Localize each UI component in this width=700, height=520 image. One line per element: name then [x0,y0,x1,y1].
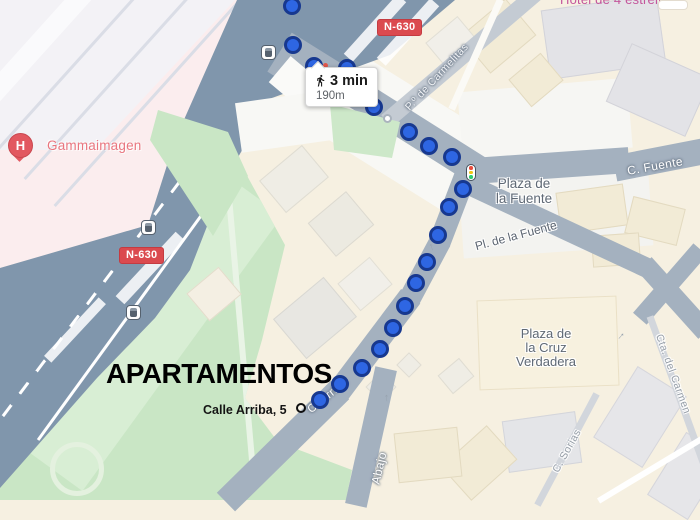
building [394,427,463,483]
hospital-label[interactable]: Gammaimagen [47,138,142,153]
destination-ring-marker[interactable] [296,403,306,413]
apartments-label: APARTAMENTOS [106,358,332,390]
route-dot [429,226,447,244]
bus-stop-icon[interactable] [261,45,276,60]
route-dot [400,123,418,141]
bus-stop-icon[interactable] [126,305,141,320]
hospital-pin-letter: H [16,138,25,153]
route-dot [371,340,389,358]
address-label: Calle Arriba, 5 [203,403,287,417]
junction-node [383,114,392,123]
route-dot [384,319,402,337]
route-dot [454,180,472,198]
tooltip-duration: 3 min [330,73,368,89]
map-canvas[interactable]: { "tooltip": { "duration": "3 min", "dis… [0,0,700,500]
tooltip-row: 3 min [314,72,368,89]
route-dot [418,253,436,271]
route-dot [331,375,349,393]
bus-icon-glyph [145,223,152,232]
shield-label: N-630 [384,21,415,33]
bus-icon-glyph [265,48,272,57]
park-circle-path [50,442,104,496]
route-dot [284,36,302,54]
area-label-plaza-cruz[interactable]: Plaza de la Cruz Verdadera [490,327,602,369]
route-dot [443,148,461,166]
traffic-light-red [469,166,473,170]
route-dot [420,137,438,155]
walking-person-icon [314,72,327,89]
hospital-pin[interactable]: H [8,133,33,158]
route-shield-n630: N-630 [119,247,164,264]
route-dot [396,297,414,315]
traffic-light-yellow [469,171,473,175]
area-label-plaza-fuente[interactable]: Plaza de la Fuente [468,177,580,206]
building [259,145,329,213]
shield-label: N-630 [126,249,157,261]
route-dot [311,391,329,409]
route-dot [353,359,371,377]
tooltip-distance: 190m [316,90,368,102]
route-dot [407,274,425,292]
hotel-icon-box [658,0,688,10]
oneway-arrow-icon: ↑ [384,393,390,404]
bus-stop-icon[interactable] [141,220,156,235]
building [396,352,421,377]
building [308,191,375,257]
route-info-tooltip[interactable]: 3 min 190m [305,67,378,107]
building [438,358,475,394]
bus-icon-glyph [130,308,137,317]
route-shield-n630: N-630 [377,19,422,36]
route-dot [440,198,458,216]
